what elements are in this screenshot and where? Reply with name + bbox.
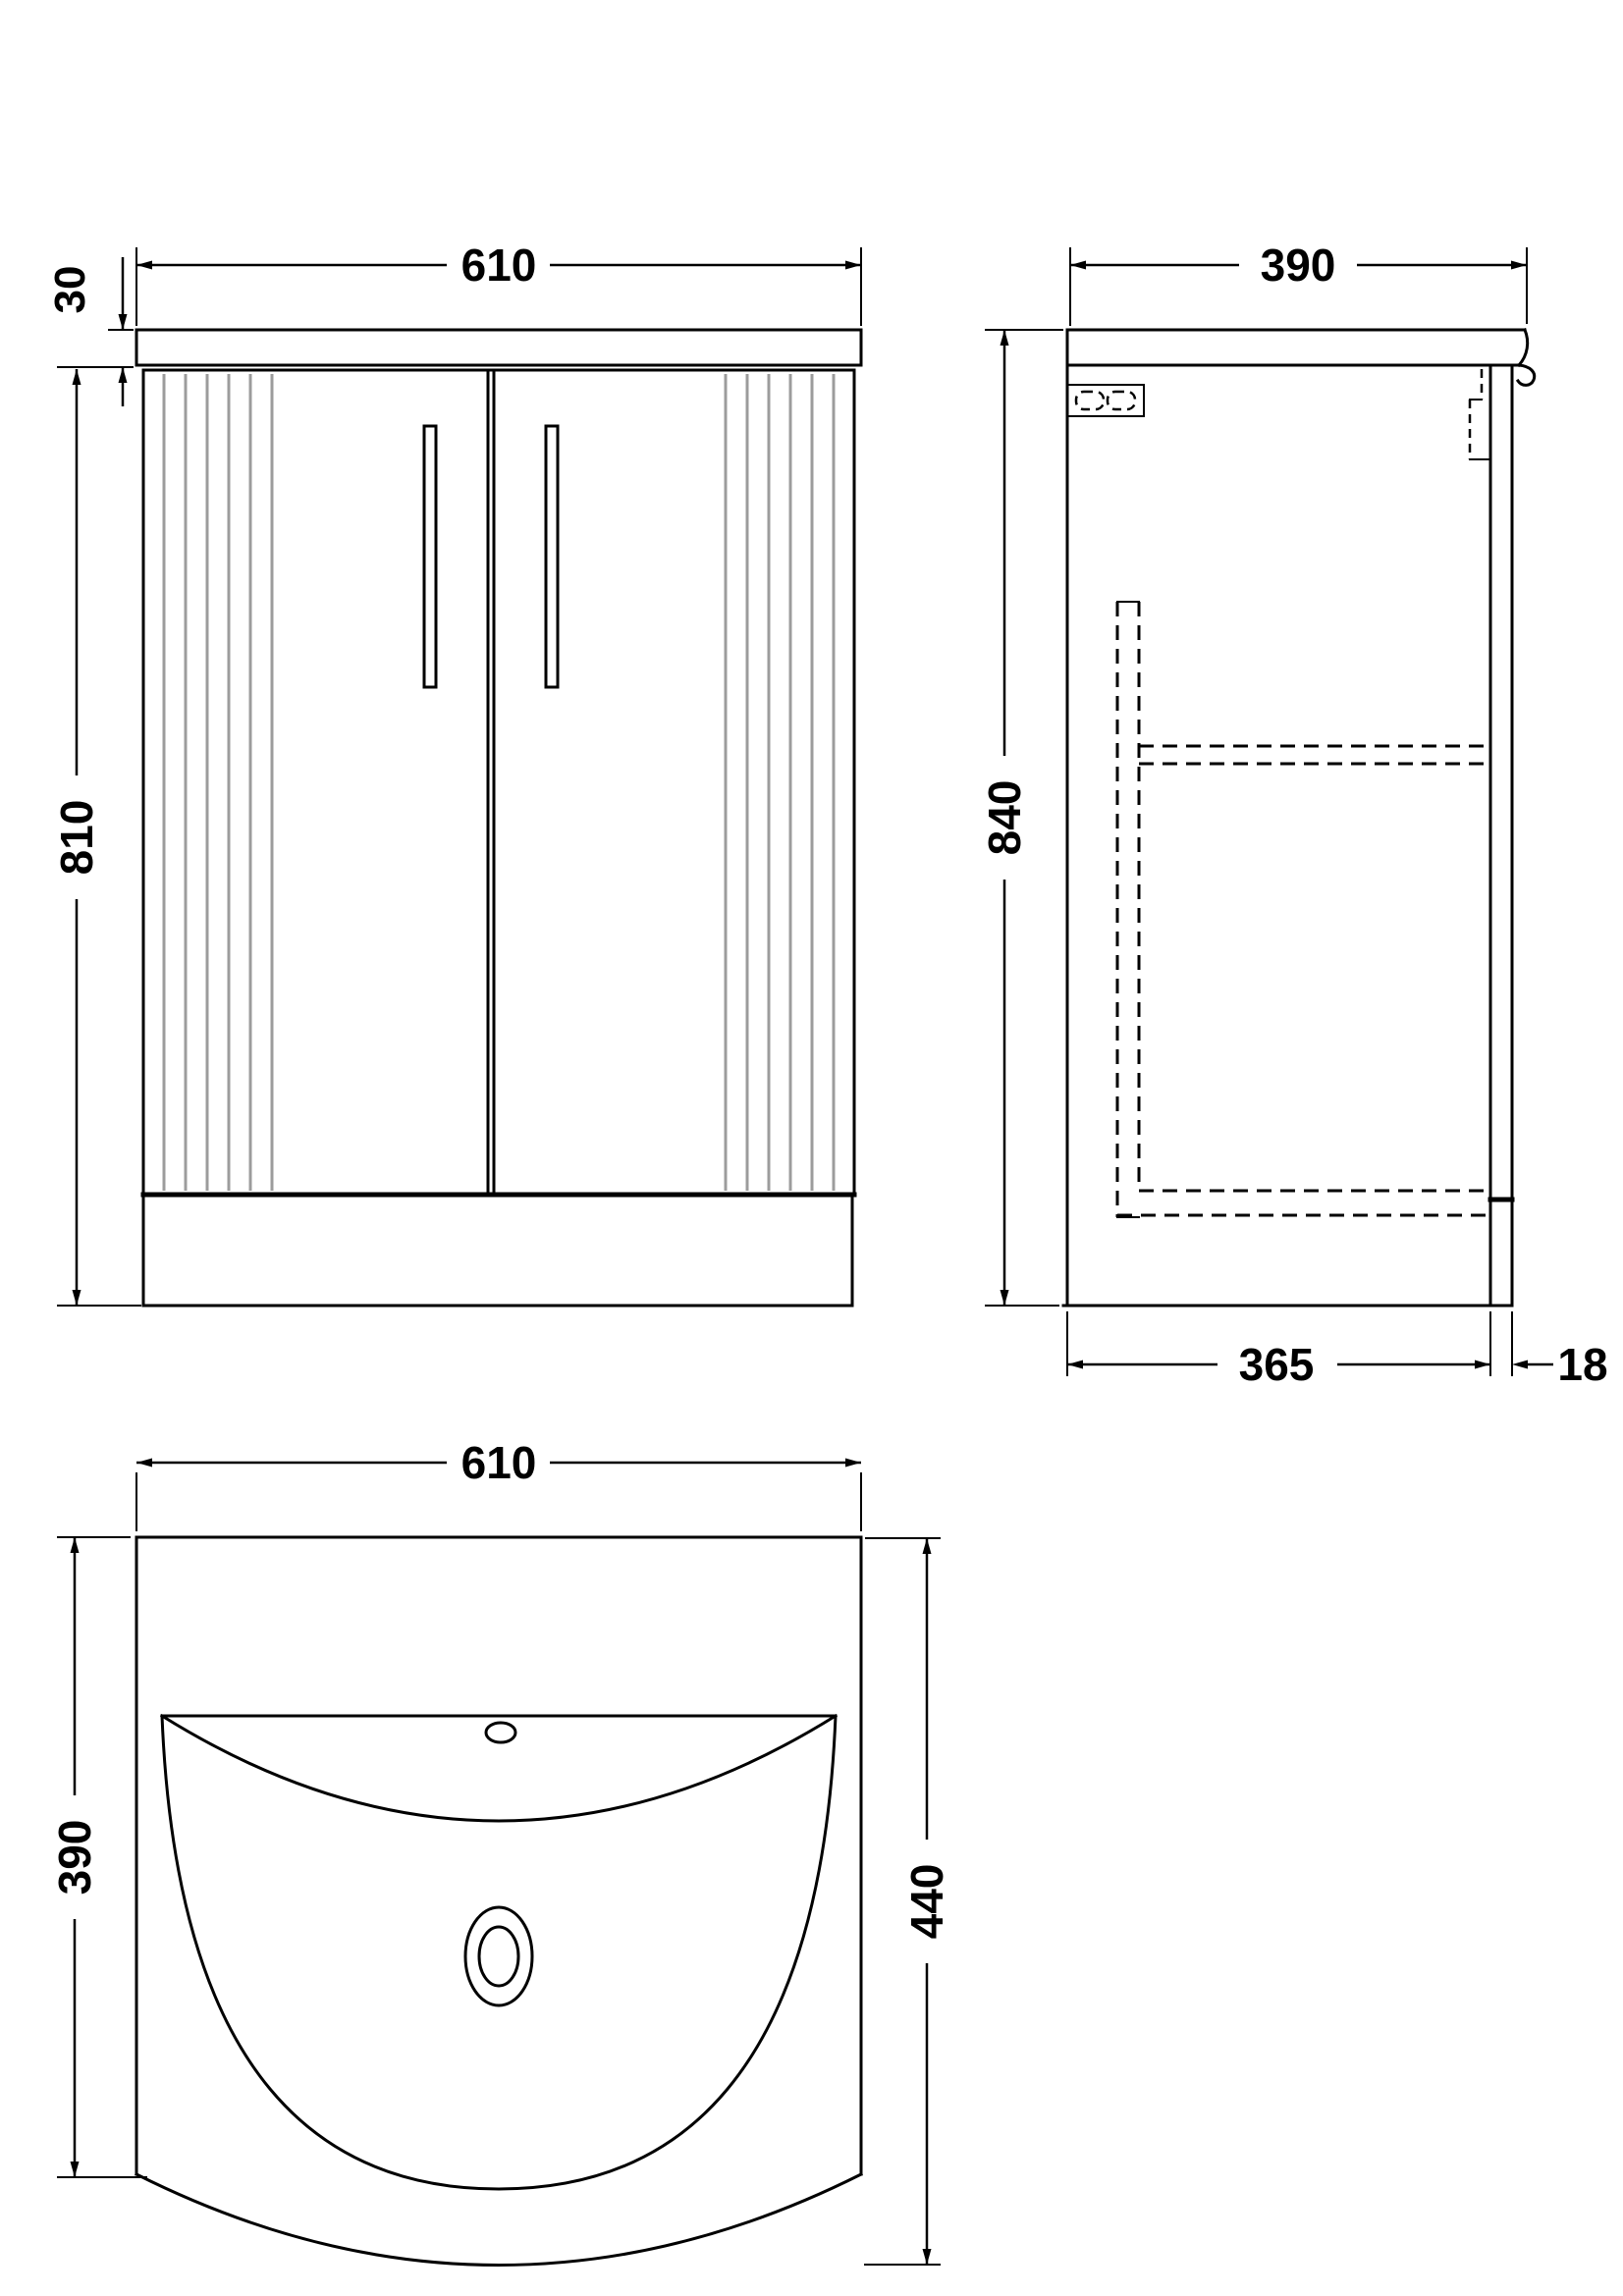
dim-plan-width-value: 610 [461,1437,537,1488]
dim-plan-bowl-depth-value: 390 [49,1820,100,1896]
dim-overall-height-value: 840 [979,780,1030,856]
dim-carcass-depth-value: 365 [1239,1339,1315,1390]
dim-worktop-thickness-value: 30 [46,266,94,314]
dim-front-width-value: 610 [461,240,537,291]
drawing-sheet: 610 30 810 [0,0,1623,2296]
vanity-technical-drawing: 610 30 810 [0,0,1623,2296]
dim-plan-overall-depth-value: 440 [901,1864,952,1940]
dim-side-depth-value: 390 [1261,240,1336,291]
dim-door-thickness-value: 18 [1557,1339,1607,1390]
dim-cabinet-height-value: 810 [51,800,102,876]
